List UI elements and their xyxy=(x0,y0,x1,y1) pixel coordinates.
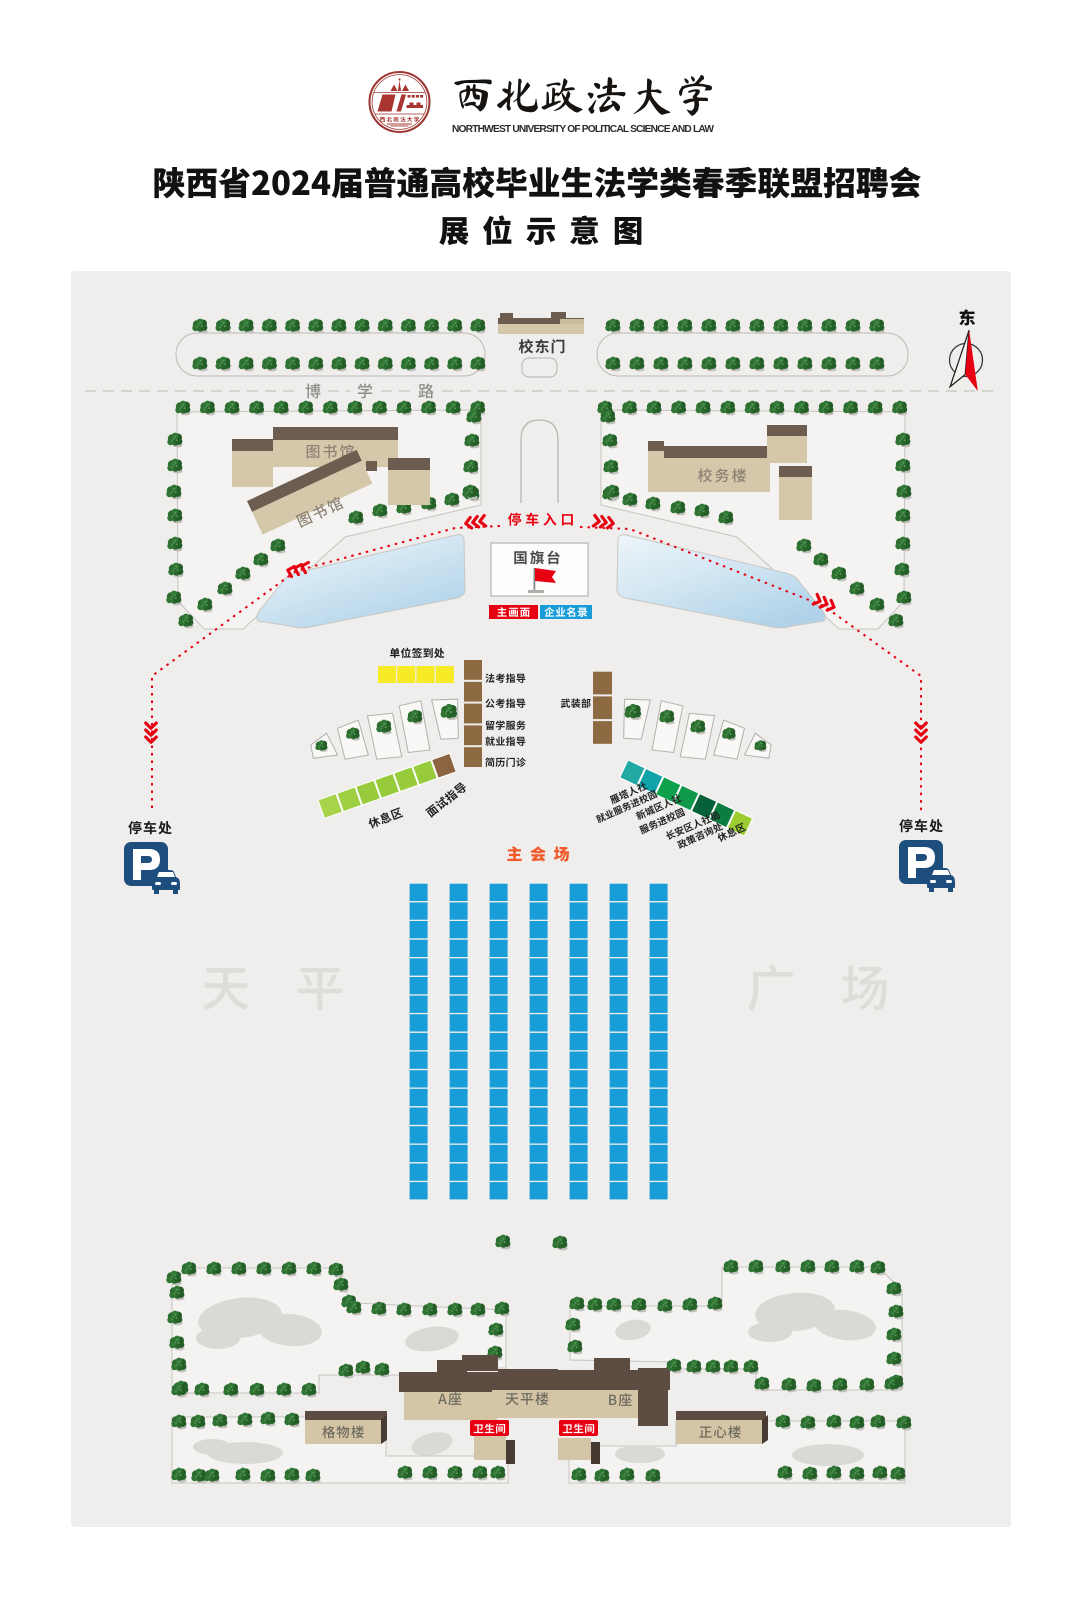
svg-text:NORTHWEST UNIVERSITY OF POLITI: NORTHWEST UNIVERSITY OF POLITICAL SCIENC… xyxy=(452,124,714,135)
